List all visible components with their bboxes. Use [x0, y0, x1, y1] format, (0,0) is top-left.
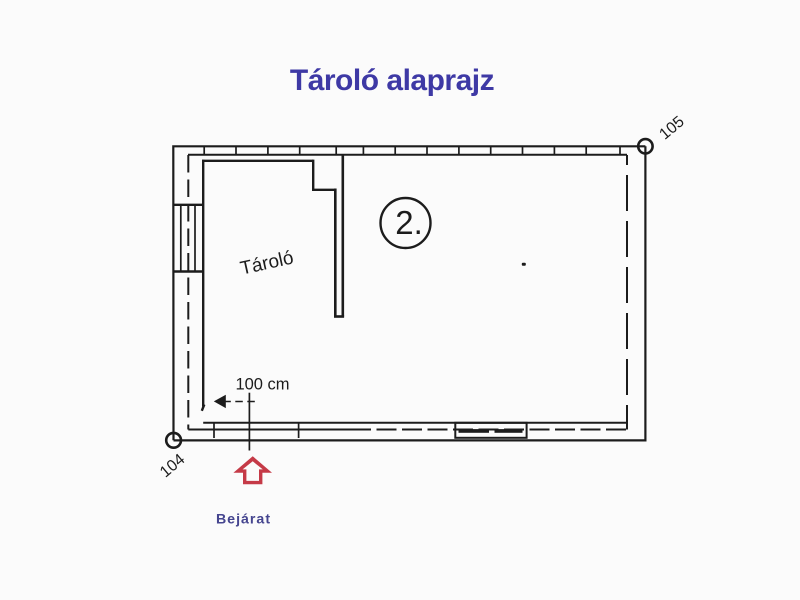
- svg-text:2.: 2.: [395, 204, 423, 241]
- svg-text:100 cm: 100 cm: [235, 376, 289, 394]
- svg-text:Bejárat: Bejárat: [216, 511, 271, 527]
- svg-text:Tároló alaprajz: Tároló alaprajz: [290, 64, 494, 97]
